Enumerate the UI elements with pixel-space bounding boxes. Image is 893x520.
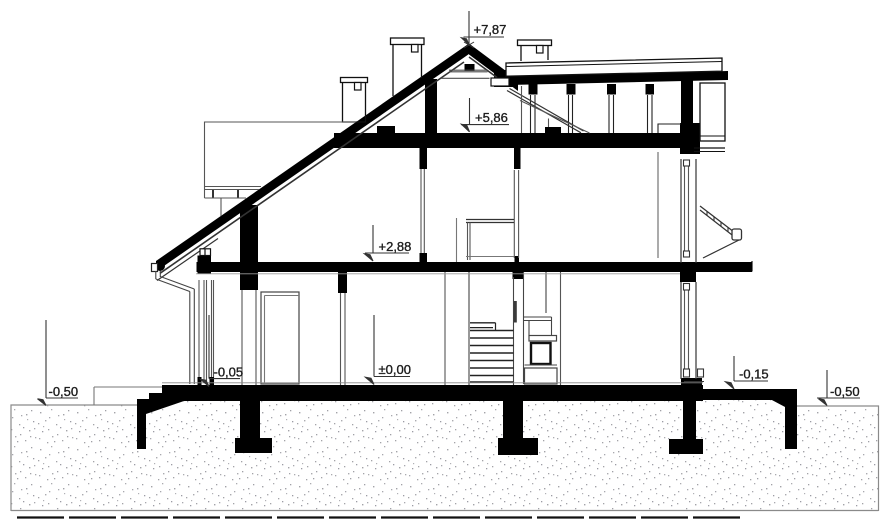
- svg-text:-0,05: -0,05: [214, 365, 244, 380]
- svg-text:-0,50: -0,50: [49, 384, 79, 399]
- svg-text:-0,50: -0,50: [830, 384, 860, 399]
- svg-text:±0,00: ±0,00: [379, 362, 411, 377]
- svg-text:-0,15: -0,15: [739, 367, 769, 382]
- svg-text:+5,86: +5,86: [475, 110, 508, 125]
- svg-text:+2,88: +2,88: [379, 239, 412, 254]
- svg-text:+7,87: +7,87: [474, 22, 507, 37]
